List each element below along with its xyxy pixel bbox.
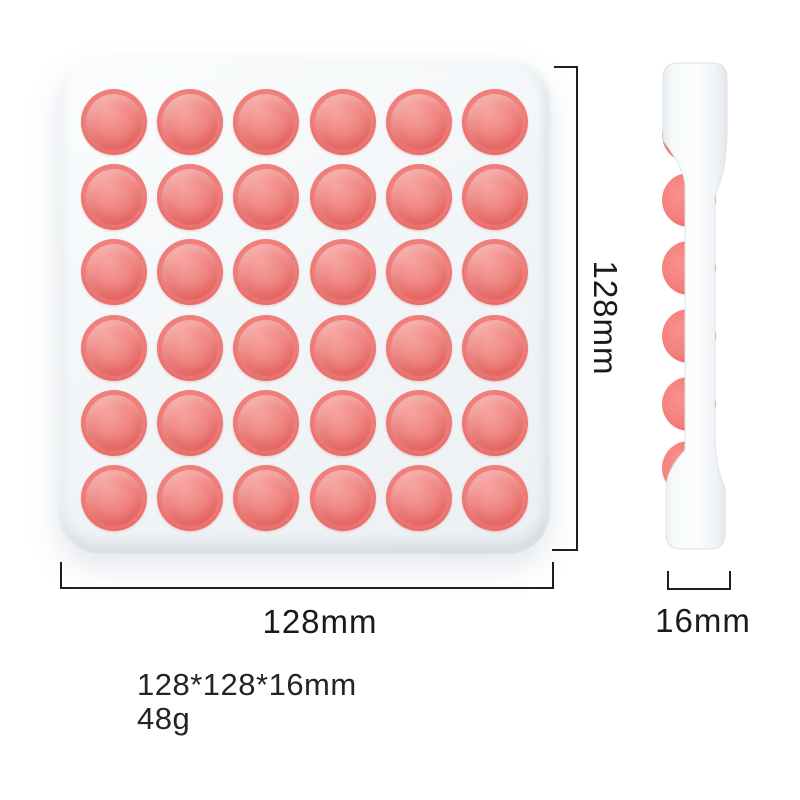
- pop-bubble: [462, 89, 528, 155]
- pop-bubble: [157, 239, 223, 305]
- pop-bubble: [310, 390, 376, 456]
- pop-bubble: [81, 164, 147, 230]
- side-view-body: [663, 63, 727, 549]
- width-dim-left-tick: [60, 562, 62, 589]
- pop-bubble: [233, 465, 299, 531]
- product-side-view: [648, 55, 742, 557]
- pop-bubble: [233, 164, 299, 230]
- width-dim-right-tick: [552, 562, 554, 589]
- height-dim-vline: [576, 66, 578, 551]
- pop-bubble: [462, 164, 528, 230]
- pop-bubble: [157, 164, 223, 230]
- weight-spec-text: 48g: [137, 702, 357, 736]
- thickness-dim-right-tick: [729, 571, 731, 590]
- height-dim-bottom-tick: [552, 549, 578, 551]
- pop-bubble: [310, 89, 376, 155]
- pop-bubble: [81, 390, 147, 456]
- pop-bubble: [310, 239, 376, 305]
- pop-bubble: [157, 315, 223, 381]
- pop-bubble: [81, 239, 147, 305]
- pop-bubble: [462, 465, 528, 531]
- pop-bubble: [81, 465, 147, 531]
- height-dimension-label: 128mm: [586, 260, 624, 375]
- pop-bubble: [157, 390, 223, 456]
- product-front-view: [57, 57, 551, 554]
- size-spec-text: 128*128*16mm: [137, 668, 357, 702]
- thickness-dim-hline: [667, 588, 731, 590]
- pop-bubble: [233, 89, 299, 155]
- thickness-dimension-label: 16mm: [655, 602, 751, 640]
- pop-bubble: [386, 89, 452, 155]
- width-dim-hline: [60, 587, 554, 589]
- pop-bubble: [310, 465, 376, 531]
- pop-bubble: [233, 390, 299, 456]
- pop-bubble: [157, 465, 223, 531]
- pop-bubble: [233, 315, 299, 381]
- pop-bubble: [462, 239, 528, 305]
- thickness-dim-left-tick: [667, 571, 669, 590]
- pop-bubble: [81, 315, 147, 381]
- pop-bubble: [462, 315, 528, 381]
- pop-bubble: [81, 89, 147, 155]
- pop-bubble: [310, 164, 376, 230]
- pop-bubble: [386, 164, 452, 230]
- product-specs: 128*128*16mm 48g: [137, 668, 357, 736]
- width-dimension-label: 128mm: [262, 603, 377, 641]
- pop-bubble: [386, 465, 452, 531]
- pop-bubble: [386, 315, 452, 381]
- pop-bubble: [157, 89, 223, 155]
- height-dim-top-tick: [554, 66, 578, 68]
- pop-bubble: [386, 239, 452, 305]
- pop-bubble: [310, 315, 376, 381]
- pop-bubble: [462, 390, 528, 456]
- pop-bubble: [386, 390, 452, 456]
- pop-bubble: [233, 239, 299, 305]
